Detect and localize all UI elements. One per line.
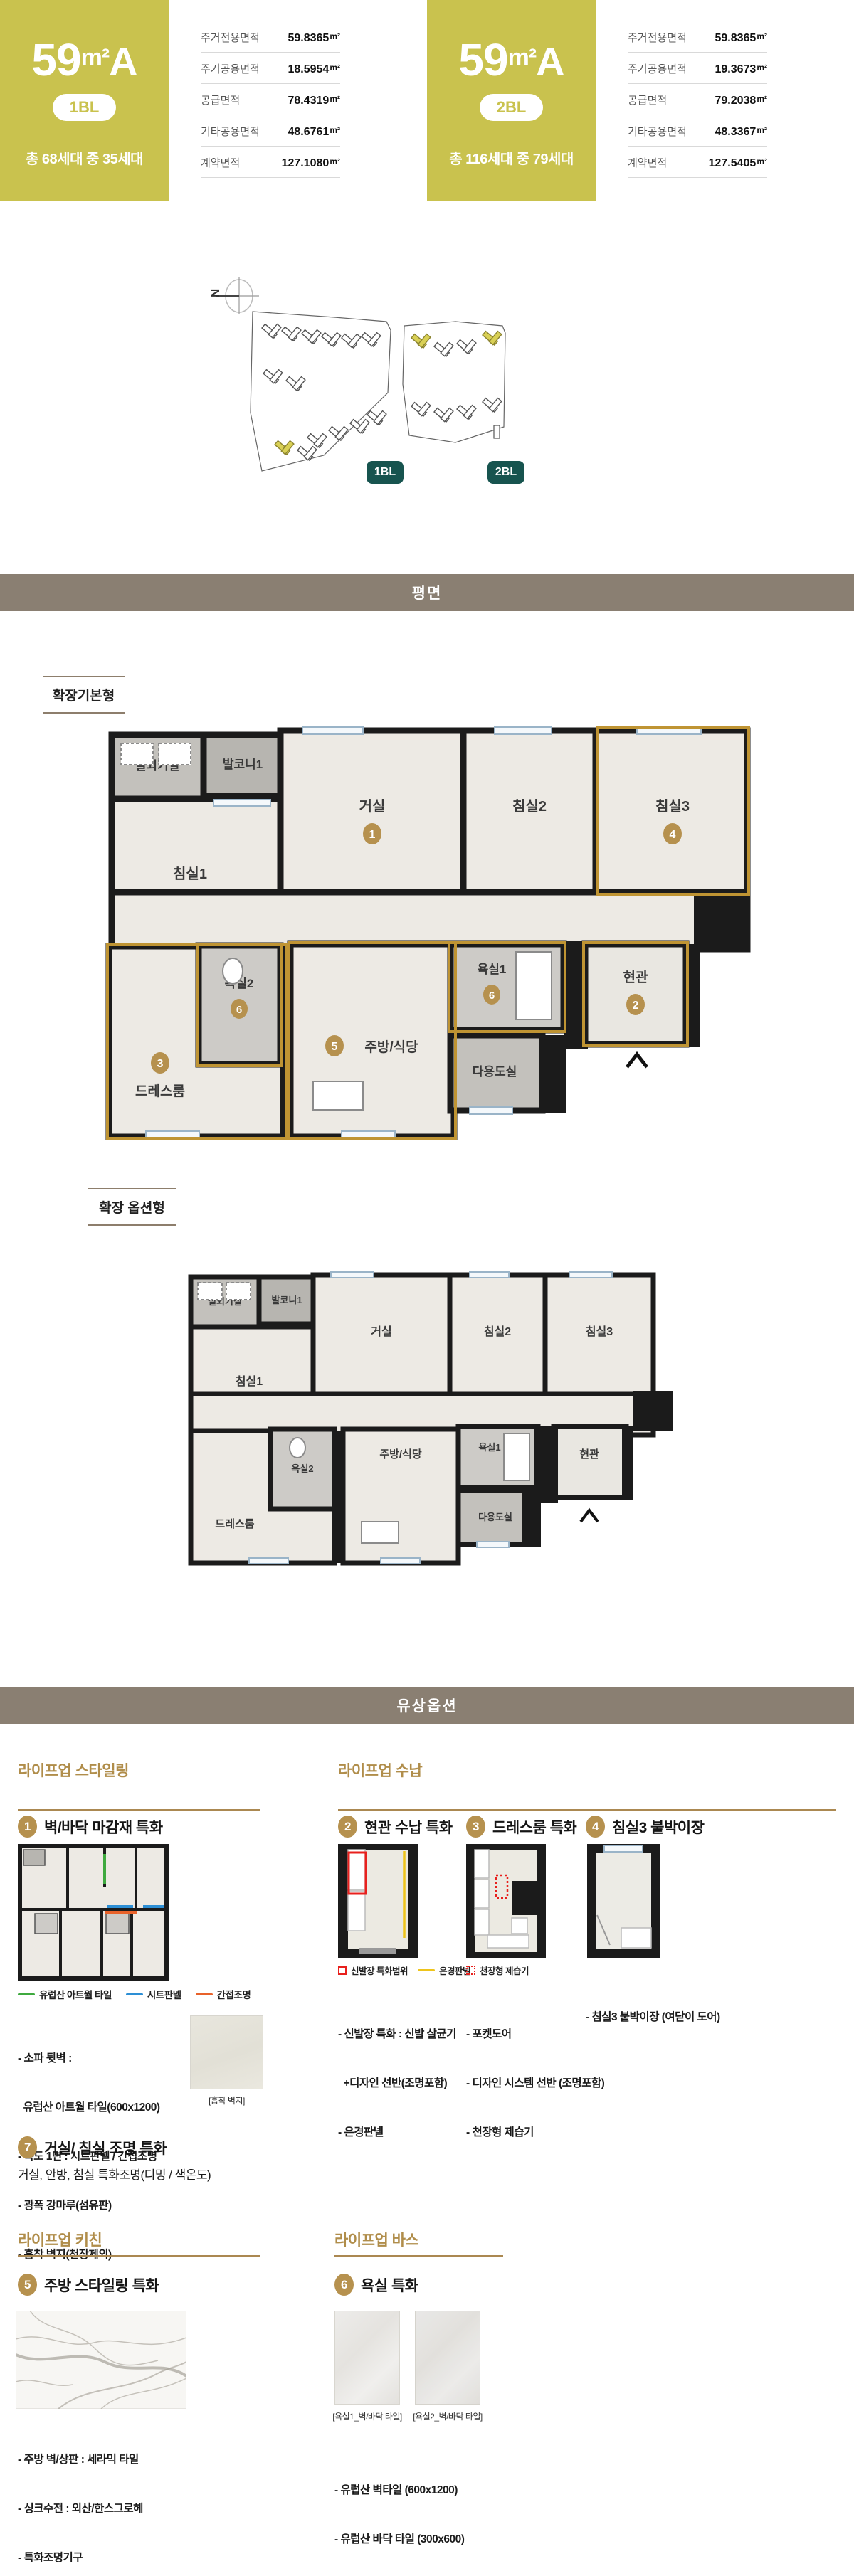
household-count: 총 68세대 중 35세대 <box>26 147 143 168</box>
area-label: 계약면적 <box>201 155 240 170</box>
area-value: 48.3367 <box>715 126 756 138</box>
area-unit: m² <box>757 63 767 73</box>
area-label: 주거전용면적 <box>628 30 687 45</box>
marble-swatch-image <box>16 2311 186 2409</box>
wallpaper-swatch-image <box>190 2015 263 2089</box>
room-num-bath1: 6 <box>489 990 495 1002</box>
mini-plan-dressroom <box>466 1844 546 1958</box>
room-num-bed3: 4 <box>670 829 676 841</box>
area-unit: m² <box>330 63 340 73</box>
section-title-styling: 라이프업 스타일링 <box>18 1759 129 1781</box>
bullet: - 광폭 강마루(섬유판) <box>18 2198 160 2214</box>
legend-label: 시트판넬 <box>147 1987 181 2001</box>
legend-label: 천장형 제습기 <box>480 1963 529 1977</box>
room-label-balcony: 발코니1 <box>223 758 263 771</box>
bullet: - 은경판넬 <box>338 2124 456 2141</box>
option-number-badge: 6 <box>334 2274 354 2296</box>
divider <box>451 137 572 137</box>
hall <box>112 892 747 949</box>
option-item7-title: 거실/ 침실 조명 특화 <box>44 2137 167 2158</box>
mini-plan-bed3 <box>587 1844 660 1958</box>
area-unit: m² <box>330 31 340 41</box>
legend-label: 간접조명 <box>217 1987 251 2001</box>
bullet: - 소파 뒷벽 : <box>18 2050 160 2067</box>
bath2-tile-swatch-image <box>415 2311 480 2405</box>
bullet: - 침실3 붙박이장 (여닫이 도어) <box>586 2009 720 2025</box>
unit-size-unit: m² <box>81 44 110 71</box>
brochure-page: 59m²A 1BL 총 68세대 중 35세대 주거전용면적59.8365m² … <box>0 0 854 2576</box>
table-row: 계약면적127.1080m² <box>201 147 340 178</box>
room-label-bath2: 욕실2 <box>291 1463 313 1474</box>
area-unit: m² <box>757 125 767 135</box>
section-title-bath: 라이프업 바스 <box>334 2229 418 2250</box>
room-label-dress: 드레스룸 <box>215 1518 254 1530</box>
bullet: - 유럽산 벽타일 (600x1200) <box>334 2482 540 2498</box>
option-number-badge: 2 <box>338 1816 357 1838</box>
green-dash-icon <box>18 1993 35 1995</box>
compass-north-label: N <box>209 289 222 297</box>
bed3-bullets: - 침실3 붙박이장 (여닫이 도어) <box>586 1976 720 2058</box>
unit-type-title: 59m²A <box>31 37 137 83</box>
bath-bullets: - 유럽산 벽타일 (600x1200) - 유럽산 바닥 타일 (300x60… <box>334 2449 540 2576</box>
option-number-badge: 5 <box>18 2274 37 2296</box>
bullet: - 특화조명기구 <box>18 2550 166 2566</box>
area-label: 공급면적 <box>201 92 240 107</box>
option-item5-heading: 5 주방 스타일링 특화 <box>18 2274 159 2296</box>
gold-underline <box>18 2255 260 2257</box>
small-building <box>494 425 500 438</box>
room-label-bath1: 욕실1 <box>478 963 507 976</box>
room-num-bath2: 6 <box>236 1004 242 1016</box>
area-value: 79.2038 <box>715 95 756 107</box>
area-table-1bl: 주거전용면적59.8365m² 주거공용면적18.5954m² 공급면적78.4… <box>169 0 370 201</box>
unit-type-letter: A <box>536 39 564 84</box>
area-value: 59.8365 <box>288 32 329 44</box>
area-value: 127.1080 <box>282 157 330 169</box>
bullet: +디자인 선반(조명포함) <box>338 2075 456 2092</box>
option-item7-heading: 7 거실/ 침실 조명 특화 <box>18 2136 167 2158</box>
legend-label: 유럽산 아트월 타일 <box>39 1987 112 2001</box>
siteplan-badge-1bl: 1BL <box>367 461 404 484</box>
option-item3-title: 드레스룸 특화 <box>492 1816 576 1838</box>
bath1-tile-swatch-image <box>334 2311 400 2405</box>
room-label-bed3: 침실3 <box>655 798 690 815</box>
table-row: 기타공용면적48.6761m² <box>201 115 340 147</box>
option-number-badge: 1 <box>18 1816 37 1838</box>
table-row: 주거전용면적59.8365m² <box>628 21 767 53</box>
area-unit: m² <box>330 94 340 104</box>
bullet: - 신발장 특화 : 신발 살균기 <box>338 2026 456 2042</box>
table-row: 주거전용면적59.8365m² <box>201 21 340 53</box>
bullet: - 디자인 시스템 선반 (조명포함) <box>466 2075 604 2092</box>
room-label-kitchen: 주방/식당 <box>364 1039 418 1055</box>
option-item1-title: 벽/바닥 마감재 특화 <box>44 1816 163 1838</box>
option-item6-title: 욕실 특화 <box>361 2274 418 2296</box>
room-label-entry: 현관 <box>623 970 648 985</box>
legend-label: 신발장 특화범위 <box>351 1963 408 1977</box>
plan-type-basic-label: 확장기본형 <box>43 676 125 714</box>
room-label-living: 거실 <box>359 798 386 815</box>
yellow-dash-icon <box>418 1969 435 1971</box>
kitchen-bullets: - 주방 벽/상판 : 세라믹 타일 - 싱크수전 : 외산/한스그로헤 - 특… <box>18 2419 166 2576</box>
bullet: - 주방 벽/상판 : 세라믹 타일 <box>18 2452 166 2468</box>
option-item1-heading: 1 벽/바닥 마감재 특화 <box>18 1816 163 1838</box>
unit-card-2bl: 59m²A 2BL 총 116세대 중 79세대 <box>427 0 596 201</box>
area-label: 주거전용면적 <box>201 30 260 45</box>
area-unit: m² <box>330 157 340 166</box>
area-label: 계약면적 <box>628 155 667 170</box>
room-label-living: 거실 <box>371 1325 391 1338</box>
room-label-kitchen: 주방/식당 <box>379 1448 422 1461</box>
entrance-arrow <box>627 1054 647 1067</box>
room-label-bed1: 침실1 <box>173 866 207 882</box>
entrance-arrow <box>581 1510 598 1522</box>
area-value: 59.8365 <box>715 32 756 44</box>
bath2-tile-label: [욕실2_벽/바닥 타일] <box>409 2410 486 2422</box>
room-num-living: 1 <box>369 829 376 841</box>
room-label-bed2: 침실2 <box>484 1325 511 1338</box>
section-bar-floorplan: 평면 <box>0 574 854 611</box>
compass-icon: N <box>209 277 259 314</box>
wallpaper-swatch-label: [흡착 벽지] <box>190 2094 263 2106</box>
area-value: 48.6761 <box>288 126 329 138</box>
floorplan-option: 실외기실 발코니1 거실 침실2 침실3 침실1 욕실2 드레스룸 주방/식당 … <box>185 1271 694 1570</box>
table-row: 계약면적127.5405m² <box>628 147 767 178</box>
gold-underline <box>338 1809 836 1811</box>
room-num-kitchen: 5 <box>332 1041 338 1053</box>
mini-plan-finish <box>18 1844 169 1981</box>
room-num-dress: 3 <box>157 1058 164 1070</box>
option-item5-title: 주방 스타일링 특화 <box>44 2274 159 2296</box>
table-row: 공급면적79.2038m² <box>628 84 767 115</box>
option-item4-title: 침실3 붙박이장 <box>612 1816 704 1838</box>
option-number-badge: 4 <box>586 1816 605 1838</box>
table-row: 주거공용면적18.5954m² <box>201 53 340 84</box>
area-unit: m² <box>757 94 767 104</box>
floorplan-basic: 실외기실 발코니1 거실 1 침실2 침실3 4 침실1 욕실2 6 3 드레스… <box>68 726 790 1142</box>
block-badge: 2BL <box>480 94 544 121</box>
room-label-bed2: 침실2 <box>512 798 547 815</box>
table-row: 기타공용면적48.3367m² <box>628 115 767 147</box>
gold-underline <box>18 1809 260 1811</box>
area-table-2bl: 주거전용면적59.8365m² 주거공용면적19.3673m² 공급면적79.2… <box>596 0 797 201</box>
household-count: 총 116세대 중 79세대 <box>449 147 574 168</box>
room-label-bed3: 침실3 <box>586 1325 613 1338</box>
orange-dash-icon <box>196 1993 213 1995</box>
blue-dash-icon <box>126 1993 143 1995</box>
entry-bullets: - 신발장 특화 : 신발 살균기 +디자인 선반(조명포함) - 은경판넬 <box>338 1993 456 2173</box>
bath1-tile-label: [욕실1_벽/바닥 타일] <box>329 2410 406 2422</box>
room-label-dress: 드레스룸 <box>135 1083 185 1099</box>
option-item3-heading: 3 드레스룸 특화 <box>466 1816 576 1838</box>
area-unit: m² <box>757 157 767 166</box>
red-dotted-box-icon <box>466 1966 475 1975</box>
siteplan-badge-2bl: 2BL <box>487 461 524 484</box>
bullet: - 싱크수전 : 외산/한스그로헤 <box>18 2501 166 2517</box>
red-box-icon <box>338 1966 347 1975</box>
option-item2-title: 현관 수납 특화 <box>364 1816 453 1838</box>
table-row: 공급면적78.4319m² <box>201 84 340 115</box>
area-label: 기타공용면적 <box>201 124 260 139</box>
bullet: - 유럽산 바닥 타일 (300x600) <box>334 2531 540 2548</box>
area-label: 공급면적 <box>628 92 667 107</box>
option-item6-heading: 6 욕실 특화 <box>334 2274 418 2296</box>
option-number-badge: 3 <box>466 1816 485 1838</box>
option-item4-heading: 4 침실3 붙박이장 <box>586 1816 704 1838</box>
section-bar-paid-option: 유상옵션 <box>0 1687 854 1724</box>
area-unit: m² <box>757 31 767 41</box>
section-title-kitchen: 라이프업 키친 <box>18 2229 102 2250</box>
room-label-utility: 다용도실 <box>478 1512 512 1522</box>
section-title-storage: 라이프업 수납 <box>338 1759 422 1781</box>
option-item7-desc: 거실, 안방, 침실 특화조명(디밍 / 색온도) <box>18 2165 211 2183</box>
unit-size: 59 <box>31 34 80 85</box>
bullet: - 천장형 제습기 <box>466 2124 604 2141</box>
area-value: 19.3673 <box>715 63 756 75</box>
dressroom-bullets: - 포켓도어 - 디자인 시스템 선반 (조명포함) - 천장형 제습기 <box>466 1993 604 2173</box>
dressroom-legend: 천장형 제습기 <box>466 1963 529 1977</box>
mini-plan-entry <box>338 1844 418 1958</box>
area-label: 주거공용면적 <box>201 61 260 76</box>
divider <box>24 137 145 137</box>
option-number-badge: 7 <box>18 2136 37 2158</box>
unit-card-1bl: 59m²A 1BL 총 68세대 중 35세대 <box>0 0 169 201</box>
builtin-closet <box>621 1928 651 1948</box>
plan-type-option-label: 확장 옵션형 <box>88 1188 176 1226</box>
room-label-balcony: 발코니1 <box>271 1295 302 1305</box>
unit-type-title: 59m²A <box>458 37 564 83</box>
room-label-bath1: 욕실1 <box>478 1442 500 1453</box>
block-badge: 1BL <box>53 94 117 121</box>
bullet: 유럽산 아트월 타일(600x1200) <box>18 2099 160 2116</box>
option-item2-heading: 2 현관 수납 특화 <box>338 1816 453 1838</box>
area-value: 18.5954 <box>288 63 329 75</box>
gold-underline <box>334 2255 503 2257</box>
bullet: - 포켓도어 <box>466 2026 604 2042</box>
unit-size-unit: m² <box>508 44 537 71</box>
area-value: 127.5405 <box>709 157 757 169</box>
unit-size: 59 <box>458 34 507 85</box>
finish-legend: 유럽산 아트월 타일 시트판넬 간접조명 <box>18 1987 251 2001</box>
entry-legend: 신발장 특화범위 은경판넬 <box>338 1963 470 1977</box>
room-label-utility: 다용도실 <box>473 1065 517 1078</box>
table-row: 주거공용면적19.3673m² <box>628 53 767 84</box>
area-value: 78.4319 <box>288 95 329 107</box>
room-num-entry: 2 <box>633 1000 639 1012</box>
area-label: 주거공용면적 <box>628 61 687 76</box>
unit-type-letter: A <box>109 39 137 84</box>
area-unit: m² <box>330 125 340 135</box>
area-label: 기타공용면적 <box>628 124 687 139</box>
room-label-entry: 현관 <box>579 1448 599 1461</box>
room-label-bed1: 침실1 <box>236 1374 263 1388</box>
